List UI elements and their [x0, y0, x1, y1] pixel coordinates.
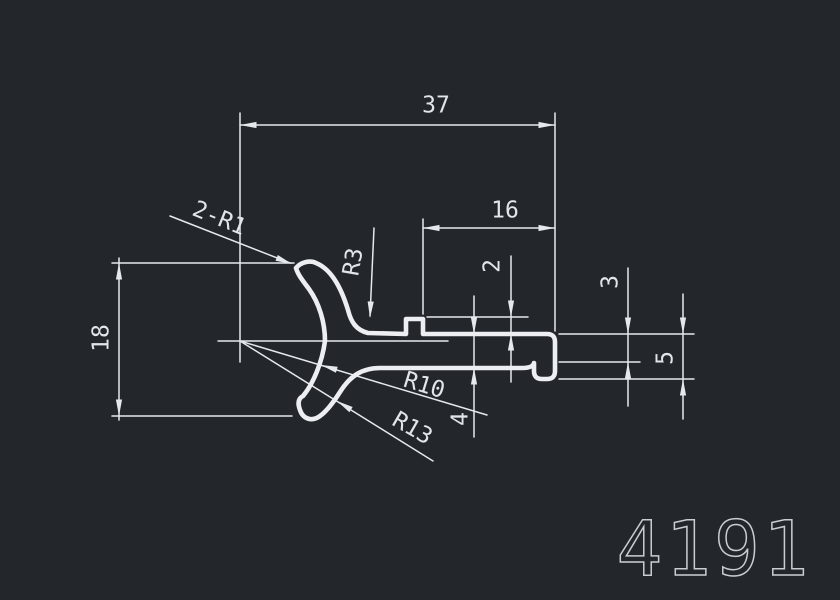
dim-label-5: 5 — [653, 351, 679, 365]
dim-label-3: 3 — [598, 275, 624, 289]
dim-label-2: 2 — [480, 259, 506, 273]
dim-label-r3: R3 — [338, 246, 368, 278]
part-number: 4191 — [616, 504, 811, 593]
cad-drawing-canvas: 37 16 18 2 4 3 5 2-R1 R3 R10 R13 4191 — [0, 0, 840, 600]
dim-label-37: 37 — [422, 93, 450, 119]
dim-label-18: 18 — [89, 324, 115, 352]
dim-label-4: 4 — [448, 412, 474, 426]
dim-label-16: 16 — [491, 198, 519, 224]
